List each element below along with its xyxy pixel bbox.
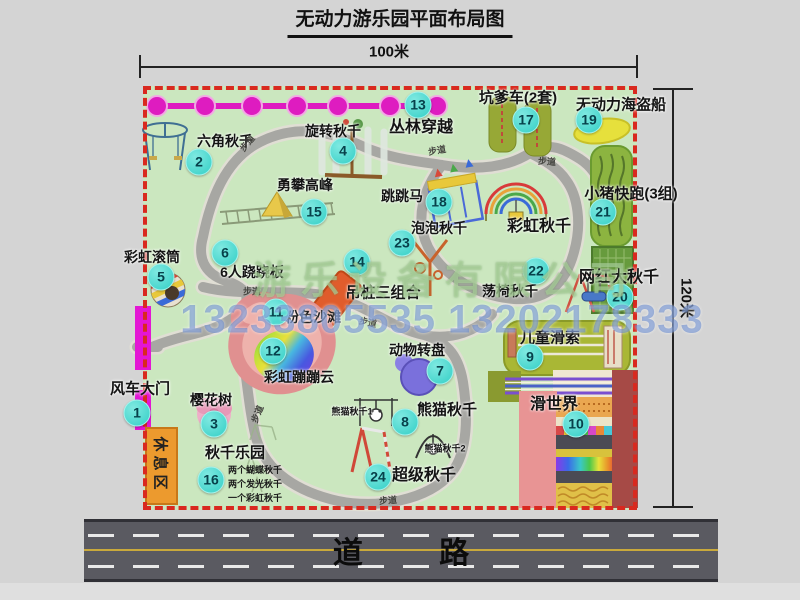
badge-attraction-16: 16	[198, 467, 225, 494]
road: 道 路	[84, 519, 718, 582]
badge-attraction-13: 13	[405, 92, 432, 119]
badge-attraction-21: 21	[590, 199, 617, 226]
label-attraction-11: 粉色沙滩	[285, 307, 341, 327]
badge-attraction-22: 22	[523, 258, 550, 285]
label-attraction-8: 熊猫秋千	[417, 399, 477, 420]
label-attraction-3: 樱花树	[190, 390, 232, 410]
label-attraction-22: 荡椅秋千	[482, 281, 538, 301]
road-label: 道 路	[84, 528, 718, 572]
walkway-label: 步道	[243, 285, 261, 298]
note-swing-park-2: 两个发光秋千	[228, 477, 282, 490]
label-attraction-12: 彩虹蹦蹦云	[264, 367, 334, 387]
label-attraction-23: 泡泡秋千	[411, 218, 467, 238]
park-map-page: 无动力游乐园平面布局图 100米 120米	[0, 0, 800, 600]
note-swing-park-3: 一个彩虹秋千	[228, 491, 282, 504]
label-attraction-24: 超级秋千	[392, 461, 456, 485]
label-attraction-1: 风车大门	[110, 378, 170, 399]
label-panda-swing-2: 熊猫秋千2	[424, 442, 465, 455]
badge-attraction-23: 23	[389, 230, 416, 257]
badge-attraction-20: 20	[607, 284, 634, 311]
badge-attraction-1: 1	[124, 400, 151, 427]
label-attraction-16: 秋千乐园	[205, 442, 265, 463]
badge-attraction-9: 9	[517, 344, 544, 371]
badge-attraction-19: 19	[576, 107, 603, 134]
label-attraction-18: 跳跳马	[381, 186, 423, 206]
label-panda-swing-1: 熊猫秋千1	[331, 405, 372, 418]
label-attraction-4: 旋转秋千	[305, 121, 361, 141]
badge-attraction-7: 7	[427, 358, 454, 385]
label-attraction-17: 坑爹车(2套)	[479, 87, 557, 108]
badge-attraction-6: 6	[212, 240, 239, 267]
badge-attraction-10: 10	[563, 411, 590, 438]
label-attraction-14: 吊桩三组合	[345, 282, 420, 303]
label-attraction-15: 勇攀高峰	[277, 175, 333, 195]
walkway-label: 步道	[379, 493, 398, 507]
badge-attraction-11: 11	[263, 299, 290, 326]
badge-attraction-18: 18	[426, 189, 453, 216]
badge-attraction-4: 4	[330, 138, 357, 165]
badge-attraction-3: 3	[201, 411, 228, 438]
label-rainbow-swing: 彩虹秋千	[507, 212, 571, 236]
badge-attraction-15: 15	[301, 199, 328, 226]
badge-attraction-2: 2	[186, 149, 213, 176]
label-attraction-5: 彩虹滚筒	[124, 247, 180, 267]
badge-attraction-17: 17	[513, 107, 540, 134]
rest-area-label: 休息区	[151, 436, 172, 493]
hexagon-swing-icon	[143, 123, 187, 170]
badge-attraction-5: 5	[148, 264, 175, 291]
note-swing-park-1: 两个蝴蝶秋千	[228, 463, 282, 476]
badge-attraction-24: 24	[365, 464, 392, 491]
walkway-label: 步道	[538, 154, 557, 168]
badge-attraction-12: 12	[260, 338, 287, 365]
badge-attraction-14: 14	[344, 249, 371, 276]
badge-attraction-8: 8	[392, 409, 419, 436]
